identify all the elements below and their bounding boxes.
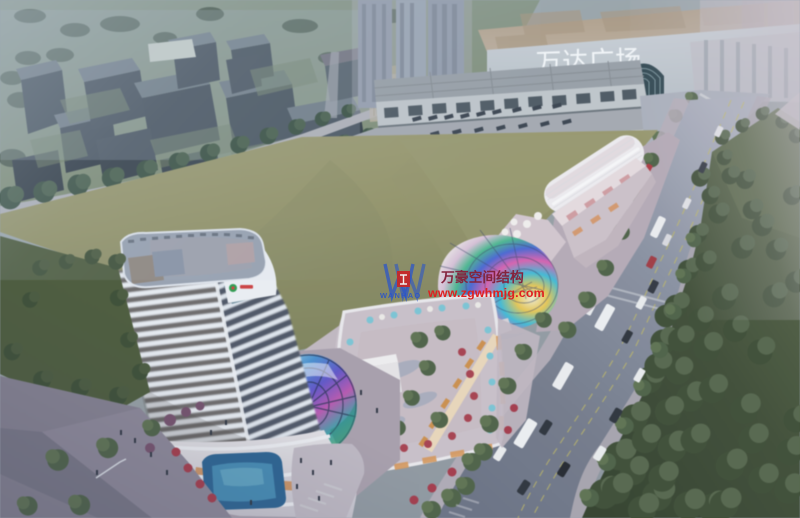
svg-text:万豪空间结构: 万豪空间结构 bbox=[440, 269, 524, 285]
svg-text:WANHAO: WANHAO bbox=[380, 291, 421, 300]
svg-text:www.zgwhmjg.com: www.zgwhmjg.com bbox=[427, 286, 545, 300]
